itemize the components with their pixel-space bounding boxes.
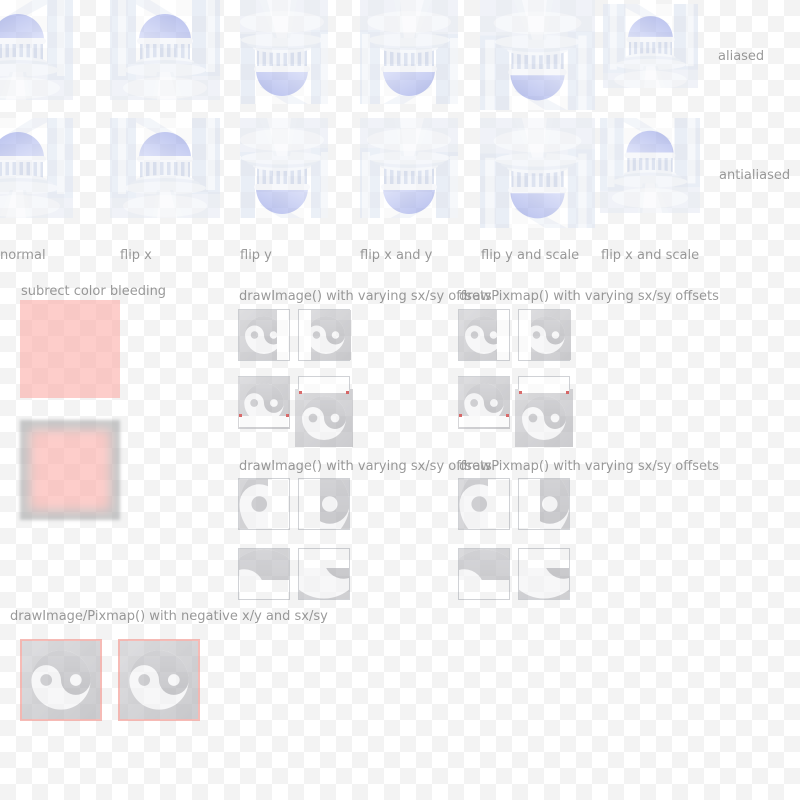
scene-flip-x-aliased	[110, 0, 220, 100]
scene-flip-xy-antialiased	[360, 118, 458, 218]
col-label-normal: normal	[0, 248, 46, 263]
col-label-flip-y-and-scale: flip y and scale	[481, 248, 579, 263]
col-label-flip-x-and-scale: flip x and scale	[601, 248, 699, 263]
scene-flip-x-scale-antialiased	[600, 118, 700, 213]
thumb-pixmap-offset-bottom	[458, 376, 510, 428]
scene-normal-antialiased	[0, 118, 73, 218]
scene-normal-aliased	[0, 0, 73, 100]
thumb-image-subrect-left	[238, 478, 290, 530]
negative-tile-pixmap	[118, 639, 200, 721]
thumb-image-offset-top	[298, 376, 350, 428]
thumb-pixmap-subrect-left	[458, 478, 510, 530]
thumb-image-subrect-bottom	[298, 548, 350, 600]
thumb-pixmap-subrect-top	[458, 548, 510, 600]
thumb-pixmap-subrect-bottom	[518, 548, 570, 600]
subrect-square-solid	[20, 300, 120, 398]
subrect-square-inner	[30, 430, 110, 510]
scene-flip-x-scale-aliased	[603, 4, 698, 88]
thumb-pixmap-offset-left	[518, 309, 570, 361]
section-title-drawpixmap-offsets-1: drawPixmap() with varying sx/sy offsets	[459, 289, 719, 304]
col-label-flip-y: flip y	[240, 248, 272, 263]
section-title-drawpixmap-offsets-2: drawPixmap() with varying sx/sy offsets	[459, 459, 719, 474]
section-title-subrect: subrect color bleeding	[21, 284, 166, 299]
scene-flip-y-scale-aliased	[480, 0, 595, 110]
negative-tile-image	[20, 639, 102, 721]
row-label-aliased: aliased	[718, 49, 764, 64]
section-title-drawimage-offsets-1: drawImage() with varying sx/sy offsets	[239, 289, 492, 304]
thumb-image-subrect-right	[298, 478, 350, 530]
col-label-flip-x-and-y: flip x and y	[360, 248, 432, 263]
canvas-checkerboard: { "render_labels": { "row1": "aliased", …	[0, 0, 800, 800]
scene-flip-y-antialiased	[240, 118, 328, 218]
thumb-pixmap-subrect-right	[518, 478, 570, 530]
scene-flip-y-aliased	[240, 0, 328, 104]
test-render-layer: aliased antialiased normal flip x flip y…	[0, 0, 800, 800]
thumb-image-subrect-top	[238, 548, 290, 600]
row-label-antialiased: antialiased	[719, 168, 790, 183]
section-title-negative: drawImage/Pixmap() with negative x/y and…	[10, 609, 328, 624]
thumb-pixmap-offset-top	[518, 376, 570, 428]
thumb-image-offset-right	[238, 309, 290, 361]
section-title-drawimage-offsets-2: drawImage() with varying sx/sy offsets	[239, 459, 492, 474]
scene-flip-x-antialiased	[110, 118, 220, 218]
subrect-square-framed	[20, 420, 120, 520]
col-label-flip-x: flip x	[120, 248, 152, 263]
thumb-image-offset-bottom	[238, 376, 290, 428]
scene-flip-xy-aliased	[360, 0, 458, 104]
scene-flip-y-scale-antialiased	[480, 118, 595, 228]
thumb-pixmap-offset-right	[458, 309, 510, 361]
thumb-image-offset-left	[298, 309, 350, 361]
